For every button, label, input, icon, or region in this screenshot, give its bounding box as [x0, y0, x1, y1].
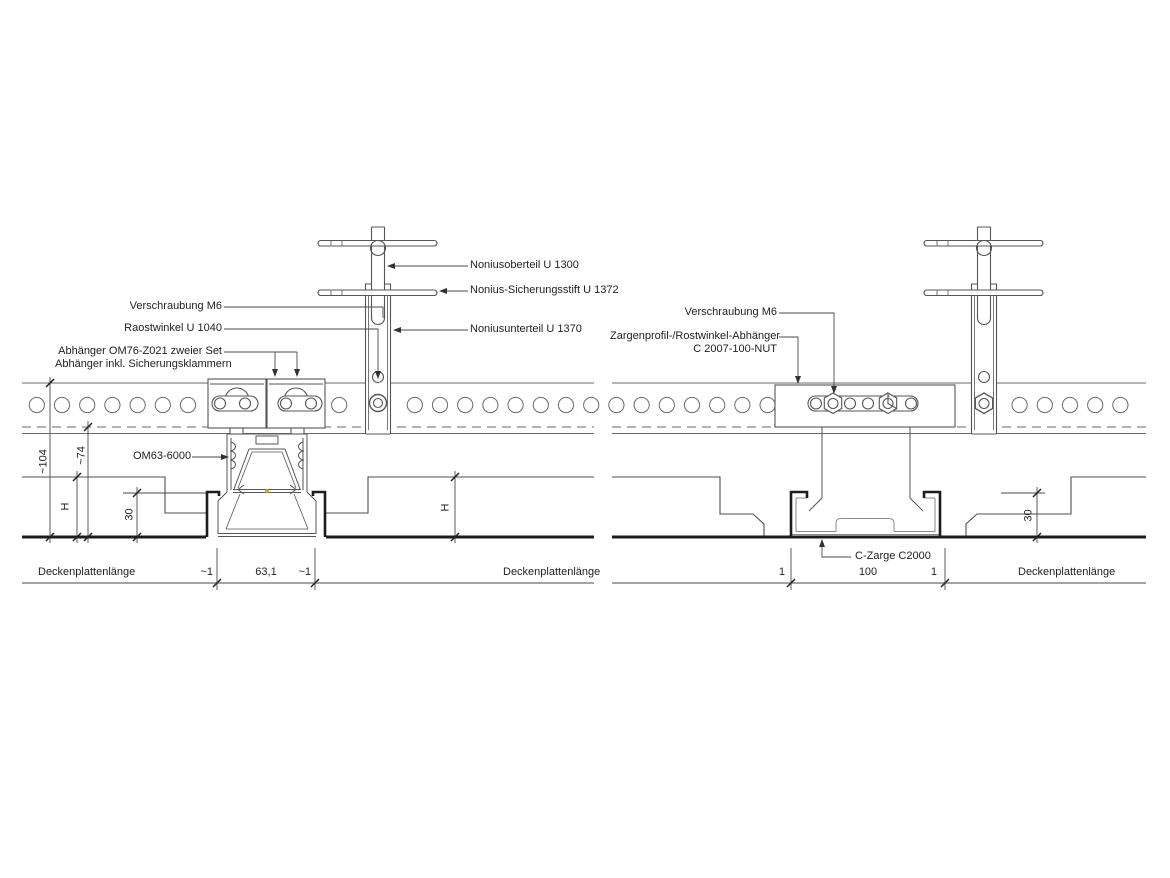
hex-nut-m6 — [879, 393, 896, 414]
dim-gap-right: ~1 — [291, 566, 311, 579]
label-rastwinkel: Raostwinkel U 1040 — [120, 322, 222, 335]
label-sicherungsstift: Nonius-Sicherungsstift U 1372 — [470, 284, 619, 297]
dim-profile-width: 63,1 — [246, 566, 286, 579]
label-noniusunterteil: Noniusunterteil U 1370 — [470, 323, 582, 336]
drawing-canvas — [0, 0, 1170, 878]
edge-trim-left-view — [207, 492, 325, 537]
c-zarge-frame — [791, 492, 940, 537]
dim-height-rail: ~74 — [76, 442, 89, 470]
label-abhaenger-line1: Abhänger OM76-Z021 zweier Set — [55, 345, 222, 358]
dim-30-right: 30 — [1023, 506, 1036, 526]
dim-h-mid: H — [440, 499, 453, 517]
dim-deckenplattenlaenge-right: Deckenplattenlänge — [1018, 566, 1115, 579]
hanger-straps — [809, 427, 923, 511]
dim-opening-width: 100 — [848, 566, 888, 579]
hanger-clamps-om76 — [208, 379, 325, 434]
dim-height-total: ~104 — [38, 445, 51, 479]
led-dot — [265, 489, 269, 493]
dim-deckenplattenlaenge-left: Deckenplattenlänge — [38, 566, 135, 579]
dim-gap-left-right-view: 1 — [771, 566, 785, 579]
label-zargenprofil-line2: C 2007-100-NUT — [610, 343, 777, 356]
dim-gap-right-right-view: 1 — [923, 566, 937, 579]
hex-nut-m6 — [824, 393, 841, 414]
ceiling-panels-right — [612, 477, 1146, 537]
ceiling-panels-left — [22, 477, 594, 513]
label-verschraubung-right: Verschraubung M6 — [675, 306, 777, 319]
label-abhaenger-line2: Abhänger inkl. Sicherungsklammern — [55, 358, 222, 371]
label-zargenprofil-line1: Zargenprofil-/Rostwinkel-Abhänger — [610, 330, 777, 343]
c-zarge-liner — [791, 498, 940, 535]
dim-gap-left: ~1 — [193, 566, 213, 579]
label-noniusoberteil: Noniusoberteil U 1300 — [470, 259, 579, 272]
mounting-plate-c2007 — [775, 385, 955, 427]
dim-h-left: H — [60, 498, 73, 516]
dim-30-left: 30 — [124, 505, 137, 525]
dim-deckenplattenlaenge-mid: Deckenplattenlänge — [503, 566, 600, 579]
technical-drawing-ceiling-details: Verschraubung M6 Raostwinkel U 1040 Abhä… — [0, 0, 1170, 878]
label-verschraubung-left: Verschraubung M6 — [120, 300, 222, 313]
aluminium-profile-om63 — [218, 434, 316, 537]
label-om63-profile: OM63-6000 — [133, 450, 190, 463]
label-czarge: C-Zarge C2000 — [855, 550, 931, 563]
